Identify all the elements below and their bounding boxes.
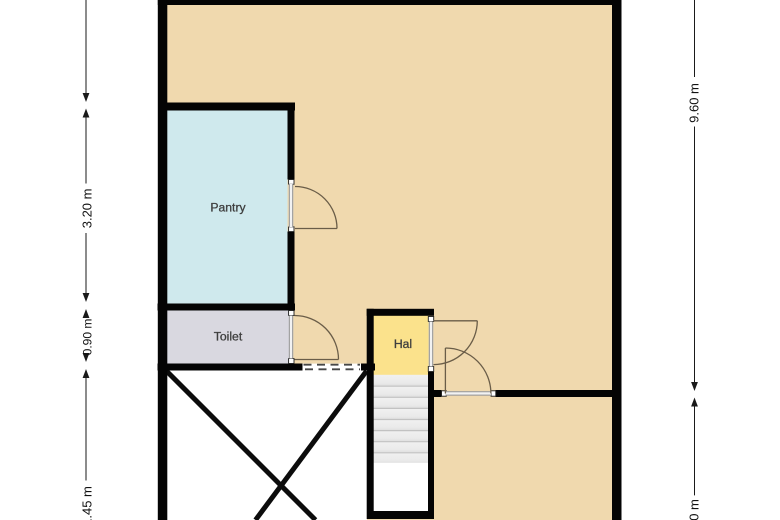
svg-text:Pantry: Pantry xyxy=(210,201,246,215)
svg-text:9.60 m: 9.60 m xyxy=(687,83,702,123)
svg-text:4.40 m: 4.40 m xyxy=(687,499,702,520)
svg-text:3.20 m: 3.20 m xyxy=(80,189,95,229)
svg-text:Hal: Hal xyxy=(394,337,412,351)
svg-text:1.45 m: 1.45 m xyxy=(80,486,95,520)
svg-text:Toilet: Toilet xyxy=(214,330,243,344)
svg-text:0.90 m: 0.90 m xyxy=(81,319,95,356)
